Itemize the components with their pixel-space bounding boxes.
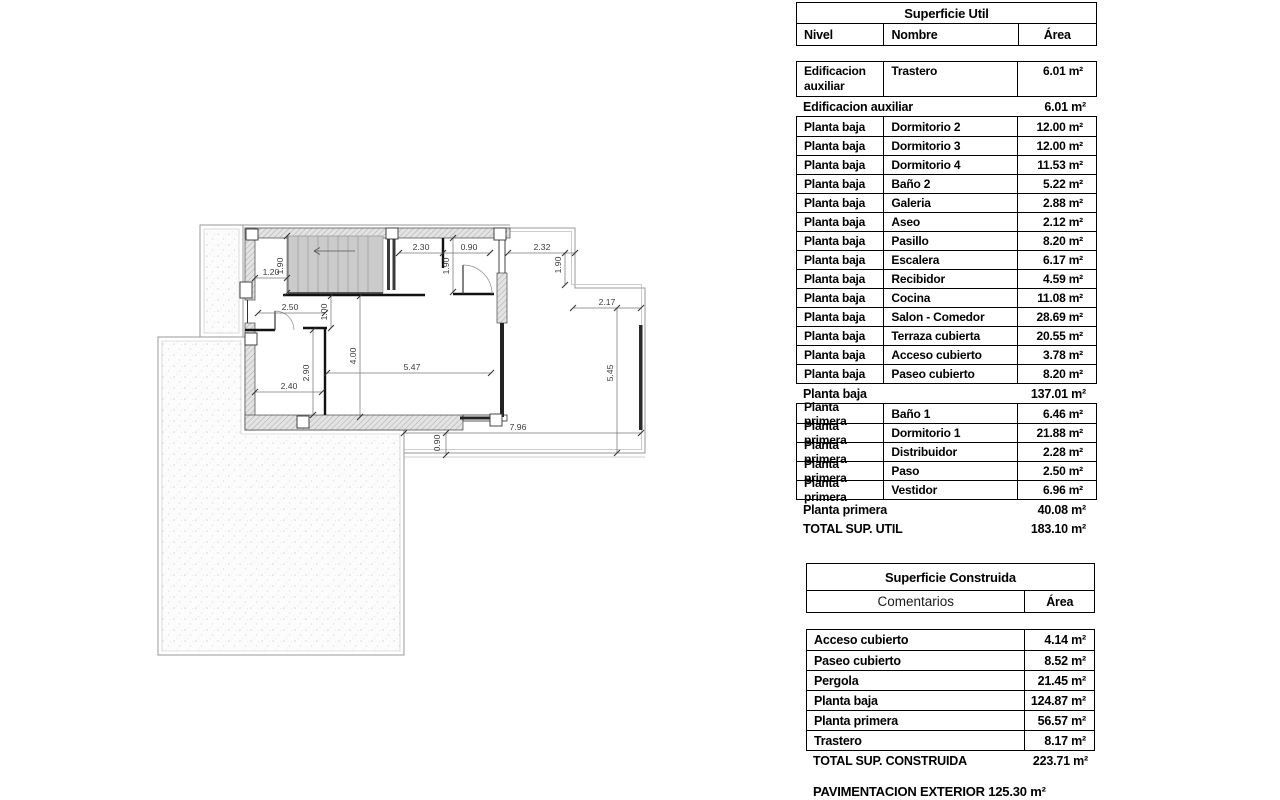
- table-row: Planta bajaPasillo8.20 m²: [797, 231, 1096, 250]
- page: 2.30 0.90 2.32 1.20 1.90 1.90 1.90 2.17 …: [0, 0, 1280, 800]
- summary-label: Edificacion auxiliar: [796, 100, 1018, 114]
- cell-nombre: Paso: [883, 462, 1017, 480]
- dim-label: 1.00: [319, 303, 329, 320]
- cell-area: 20.55 m²: [1017, 327, 1096, 345]
- table-row: Planta primeraVestidor6.96 m²: [797, 480, 1096, 499]
- summary-label: Planta baja: [796, 387, 1018, 401]
- cell-area: 8.52 m²: [1024, 651, 1094, 670]
- dim-label: 0.90: [432, 434, 442, 451]
- col-header-nombre: Nombre: [883, 24, 1017, 45]
- dim-label: 5.45: [605, 364, 615, 381]
- cell-nombre: Vestidor: [883, 481, 1017, 499]
- cell-area: 4.59 m²: [1017, 270, 1096, 288]
- cell-nivel: Planta baja: [797, 120, 883, 134]
- cell-comentario: Trastero: [807, 734, 1024, 748]
- cell-comentario: Planta primera: [807, 714, 1024, 728]
- cell-area: 2.12 m²: [1017, 213, 1096, 231]
- cell-area: 28.69 m²: [1017, 308, 1096, 326]
- cell-area: 3.78 m²: [1017, 346, 1096, 364]
- cell-area: 11.08 m²: [1017, 289, 1096, 307]
- table-row: Planta bajaCocina11.08 m²: [797, 288, 1096, 307]
- table-row: Planta primera56.57 m²: [807, 710, 1094, 730]
- cell-nivel: Planta baja: [797, 158, 883, 172]
- table-row: Trastero8.17 m²: [807, 730, 1094, 750]
- column-header-row: Nivel Nombre Área: [797, 23, 1096, 45]
- table-row: Planta bajaRecibidor4.59 m²: [797, 269, 1096, 288]
- cell-nombre: Acceso cubierto: [883, 346, 1017, 364]
- cell-area: 6.01 m²: [1017, 62, 1096, 96]
- stairs: [288, 231, 396, 293]
- total-area: 183.10 m²: [1018, 522, 1097, 536]
- cell-area: 21.88 m²: [1017, 424, 1096, 442]
- cell-area: 5.22 m²: [1017, 175, 1096, 193]
- cell-area: 12.00 m²: [1017, 117, 1096, 136]
- cell-nombre: Baño 1: [883, 404, 1017, 423]
- cell-nombre: Galeria: [883, 194, 1017, 212]
- cell-nivel: Edificacion auxiliar: [797, 62, 883, 94]
- cell-nombre: Dormitorio 3: [883, 137, 1017, 155]
- cell-nivel: Planta baja: [797, 310, 883, 324]
- table-row: Acceso cubierto4.14 m²: [807, 630, 1094, 650]
- summary-area: 6.01 m²: [1018, 100, 1097, 114]
- dim-label: 2.40: [281, 381, 298, 391]
- cell-area: 12.00 m²: [1017, 137, 1096, 155]
- group-planta-primera: Planta primeraBaño 16.46 m² Planta prime…: [796, 403, 1097, 500]
- table-row: Planta bajaEscalera6.17 m²: [797, 250, 1096, 269]
- cell-nivel: Planta baja: [797, 253, 883, 267]
- cell-nombre: Dormitorio 1: [883, 424, 1017, 442]
- floor-plan: 2.30 0.90 2.32 1.20 1.90 1.90 1.90 2.17 …: [150, 220, 720, 660]
- cell-nivel: Planta primera: [797, 476, 883, 504]
- cell-nivel: Planta baja: [797, 177, 883, 191]
- pavimentacion-exterior-label: PAVIMENTACION EXTERIOR 125.30 m²: [813, 784, 1046, 799]
- cell-nombre: Escalera: [883, 251, 1017, 269]
- summary-row: Planta primera 40.08 m²: [796, 500, 1097, 519]
- total-row: TOTAL SUP. UTIL 183.10 m²: [796, 519, 1097, 538]
- superficie-util-table: Superficie Util Nivel Nombre Área Edific…: [796, 2, 1097, 538]
- group-construida: Acceso cubierto4.14 m² Paseo cubierto8.5…: [806, 629, 1095, 751]
- superficie-construida-header: Superficie Construida Comentarios Área: [806, 563, 1095, 613]
- table-row: Planta bajaGaleria2.88 m²: [797, 193, 1096, 212]
- cell-area: 2.28 m²: [1017, 443, 1096, 461]
- cell-nivel: Planta baja: [797, 291, 883, 305]
- cell-nivel: Planta baja: [797, 139, 883, 153]
- group-planta-baja: Planta bajaDormitorio 212.00 m² Planta b…: [796, 116, 1097, 384]
- cell-nombre: Baño 2: [883, 175, 1017, 193]
- dim-label: 7.96: [510, 422, 527, 432]
- dim-label: 1.90: [275, 257, 285, 274]
- cell-nivel: Planta baja: [797, 196, 883, 210]
- cell-nombre: Trastero: [883, 62, 1017, 96]
- table-row: Planta bajaAcceso cubierto3.78 m²: [797, 345, 1096, 364]
- cell-area: 8.20 m²: [1017, 232, 1096, 250]
- cell-area: 21.45 m²: [1024, 671, 1094, 690]
- cell-area: 124.87 m²: [1024, 691, 1094, 710]
- table-row: Planta bajaSalon - Comedor28.69 m²: [797, 307, 1096, 326]
- table-row: Planta bajaAseo2.12 m²: [797, 212, 1096, 231]
- cell-nombre: Salon - Comedor: [883, 308, 1017, 326]
- total-area: 223.71 m²: [1025, 754, 1095, 768]
- total-label: TOTAL SUP. CONSTRUIDA: [806, 754, 1025, 768]
- table-row: Edificacion auxiliar Trastero 6.01 m²: [797, 62, 1096, 96]
- cell-nombre: Distribuidor: [883, 443, 1017, 461]
- cell-nivel: Planta baja: [797, 348, 883, 362]
- table-row: Planta bajaDormitorio 212.00 m²: [797, 117, 1096, 136]
- cell-area: 6.17 m²: [1017, 251, 1096, 269]
- superficie-util-header: Superficie Util Nivel Nombre Área: [796, 2, 1097, 46]
- col-header-comentarios: Comentarios: [807, 594, 1024, 609]
- table-title: Superficie Construida: [807, 564, 1094, 590]
- dim-label: 2.50: [282, 302, 299, 312]
- dim-label: 2.30: [413, 242, 430, 252]
- cell-area: 2.50 m²: [1017, 462, 1096, 480]
- cell-comentario: Planta baja: [807, 694, 1024, 708]
- dim-label: 2.17: [599, 297, 616, 307]
- dim-label: 0.90: [461, 242, 478, 252]
- cell-area: 4.14 m²: [1024, 630, 1094, 650]
- group-edificacion-auxiliar: Edificacion auxiliar Trastero 6.01 m²: [796, 61, 1097, 97]
- table-row: Planta bajaBaño 25.22 m²: [797, 174, 1096, 193]
- cell-nivel: Planta baja: [797, 367, 883, 381]
- cell-nombre: Pasillo: [883, 232, 1017, 250]
- cell-area: 11.53 m²: [1017, 156, 1096, 174]
- cell-nombre: Cocina: [883, 289, 1017, 307]
- summary-row: Edificacion auxiliar 6.01 m²: [796, 97, 1097, 116]
- column-header-row: Comentarios Área: [807, 590, 1094, 612]
- cell-nombre: Dormitorio 2: [883, 117, 1017, 136]
- cell-comentario: Pergola: [807, 674, 1024, 688]
- window-bar: [500, 323, 504, 417]
- table-row: Planta bajaTerraza cubierta20.55 m²: [797, 326, 1096, 345]
- cell-area: 2.88 m²: [1017, 194, 1096, 212]
- total-label: TOTAL SUP. UTIL: [796, 522, 1018, 536]
- dim-label: 1.90: [441, 257, 451, 274]
- col-header-area: Área: [1018, 24, 1096, 45]
- summary-label: Planta primera: [796, 503, 1018, 517]
- col-header-nivel: Nivel: [797, 28, 883, 42]
- cell-area: 6.46 m²: [1017, 404, 1096, 423]
- cell-comentario: Acceso cubierto: [807, 633, 1024, 647]
- cell-nivel: Planta baja: [797, 234, 883, 248]
- cell-nivel: Planta baja: [797, 329, 883, 343]
- cell-area: 6.96 m²: [1017, 481, 1096, 499]
- table-row: Paseo cubierto8.52 m²: [807, 650, 1094, 670]
- total-row: TOTAL SUP. CONSTRUIDA 223.71 m²: [806, 751, 1095, 770]
- cell-nombre: Paseo cubierto: [883, 365, 1017, 383]
- col-header-area: Área: [1024, 591, 1094, 612]
- dim-label: 4.00: [348, 347, 358, 364]
- cell-area: 8.17 m²: [1024, 731, 1094, 750]
- table-row: Planta bajaPaseo cubierto8.20 m²: [797, 364, 1096, 383]
- dim-label: 1.90: [553, 256, 563, 273]
- table-row: Planta bajaDormitorio 411.53 m²: [797, 155, 1096, 174]
- table-row: Planta bajaDormitorio 312.00 m²: [797, 136, 1096, 155]
- cell-nivel: Planta baja: [797, 272, 883, 286]
- cell-nombre: Recibidor: [883, 270, 1017, 288]
- cell-comentario: Paseo cubierto: [807, 654, 1024, 668]
- cell-nombre: Aseo: [883, 213, 1017, 231]
- superficie-construida-table: Superficie Construida Comentarios Área A…: [806, 563, 1095, 770]
- summary-area: 137.01 m²: [1018, 387, 1097, 401]
- summary-area: 40.08 m²: [1018, 503, 1097, 517]
- cell-nombre: Terraza cubierta: [883, 327, 1017, 345]
- table-title: Superficie Util: [797, 3, 1096, 23]
- cell-area: 8.20 m²: [1017, 365, 1096, 383]
- cell-nivel: Planta baja: [797, 215, 883, 229]
- dim-label: 2.90: [301, 364, 311, 381]
- table-row: Planta baja124.87 m²: [807, 690, 1094, 710]
- cell-area: 56.57 m²: [1024, 711, 1094, 730]
- terrace-railing: [639, 325, 643, 430]
- cell-nombre: Dormitorio 4: [883, 156, 1017, 174]
- table-row: Pergola21.45 m²: [807, 670, 1094, 690]
- dim-label: 2.32: [534, 242, 551, 252]
- dim-label: 5.47: [404, 362, 421, 372]
